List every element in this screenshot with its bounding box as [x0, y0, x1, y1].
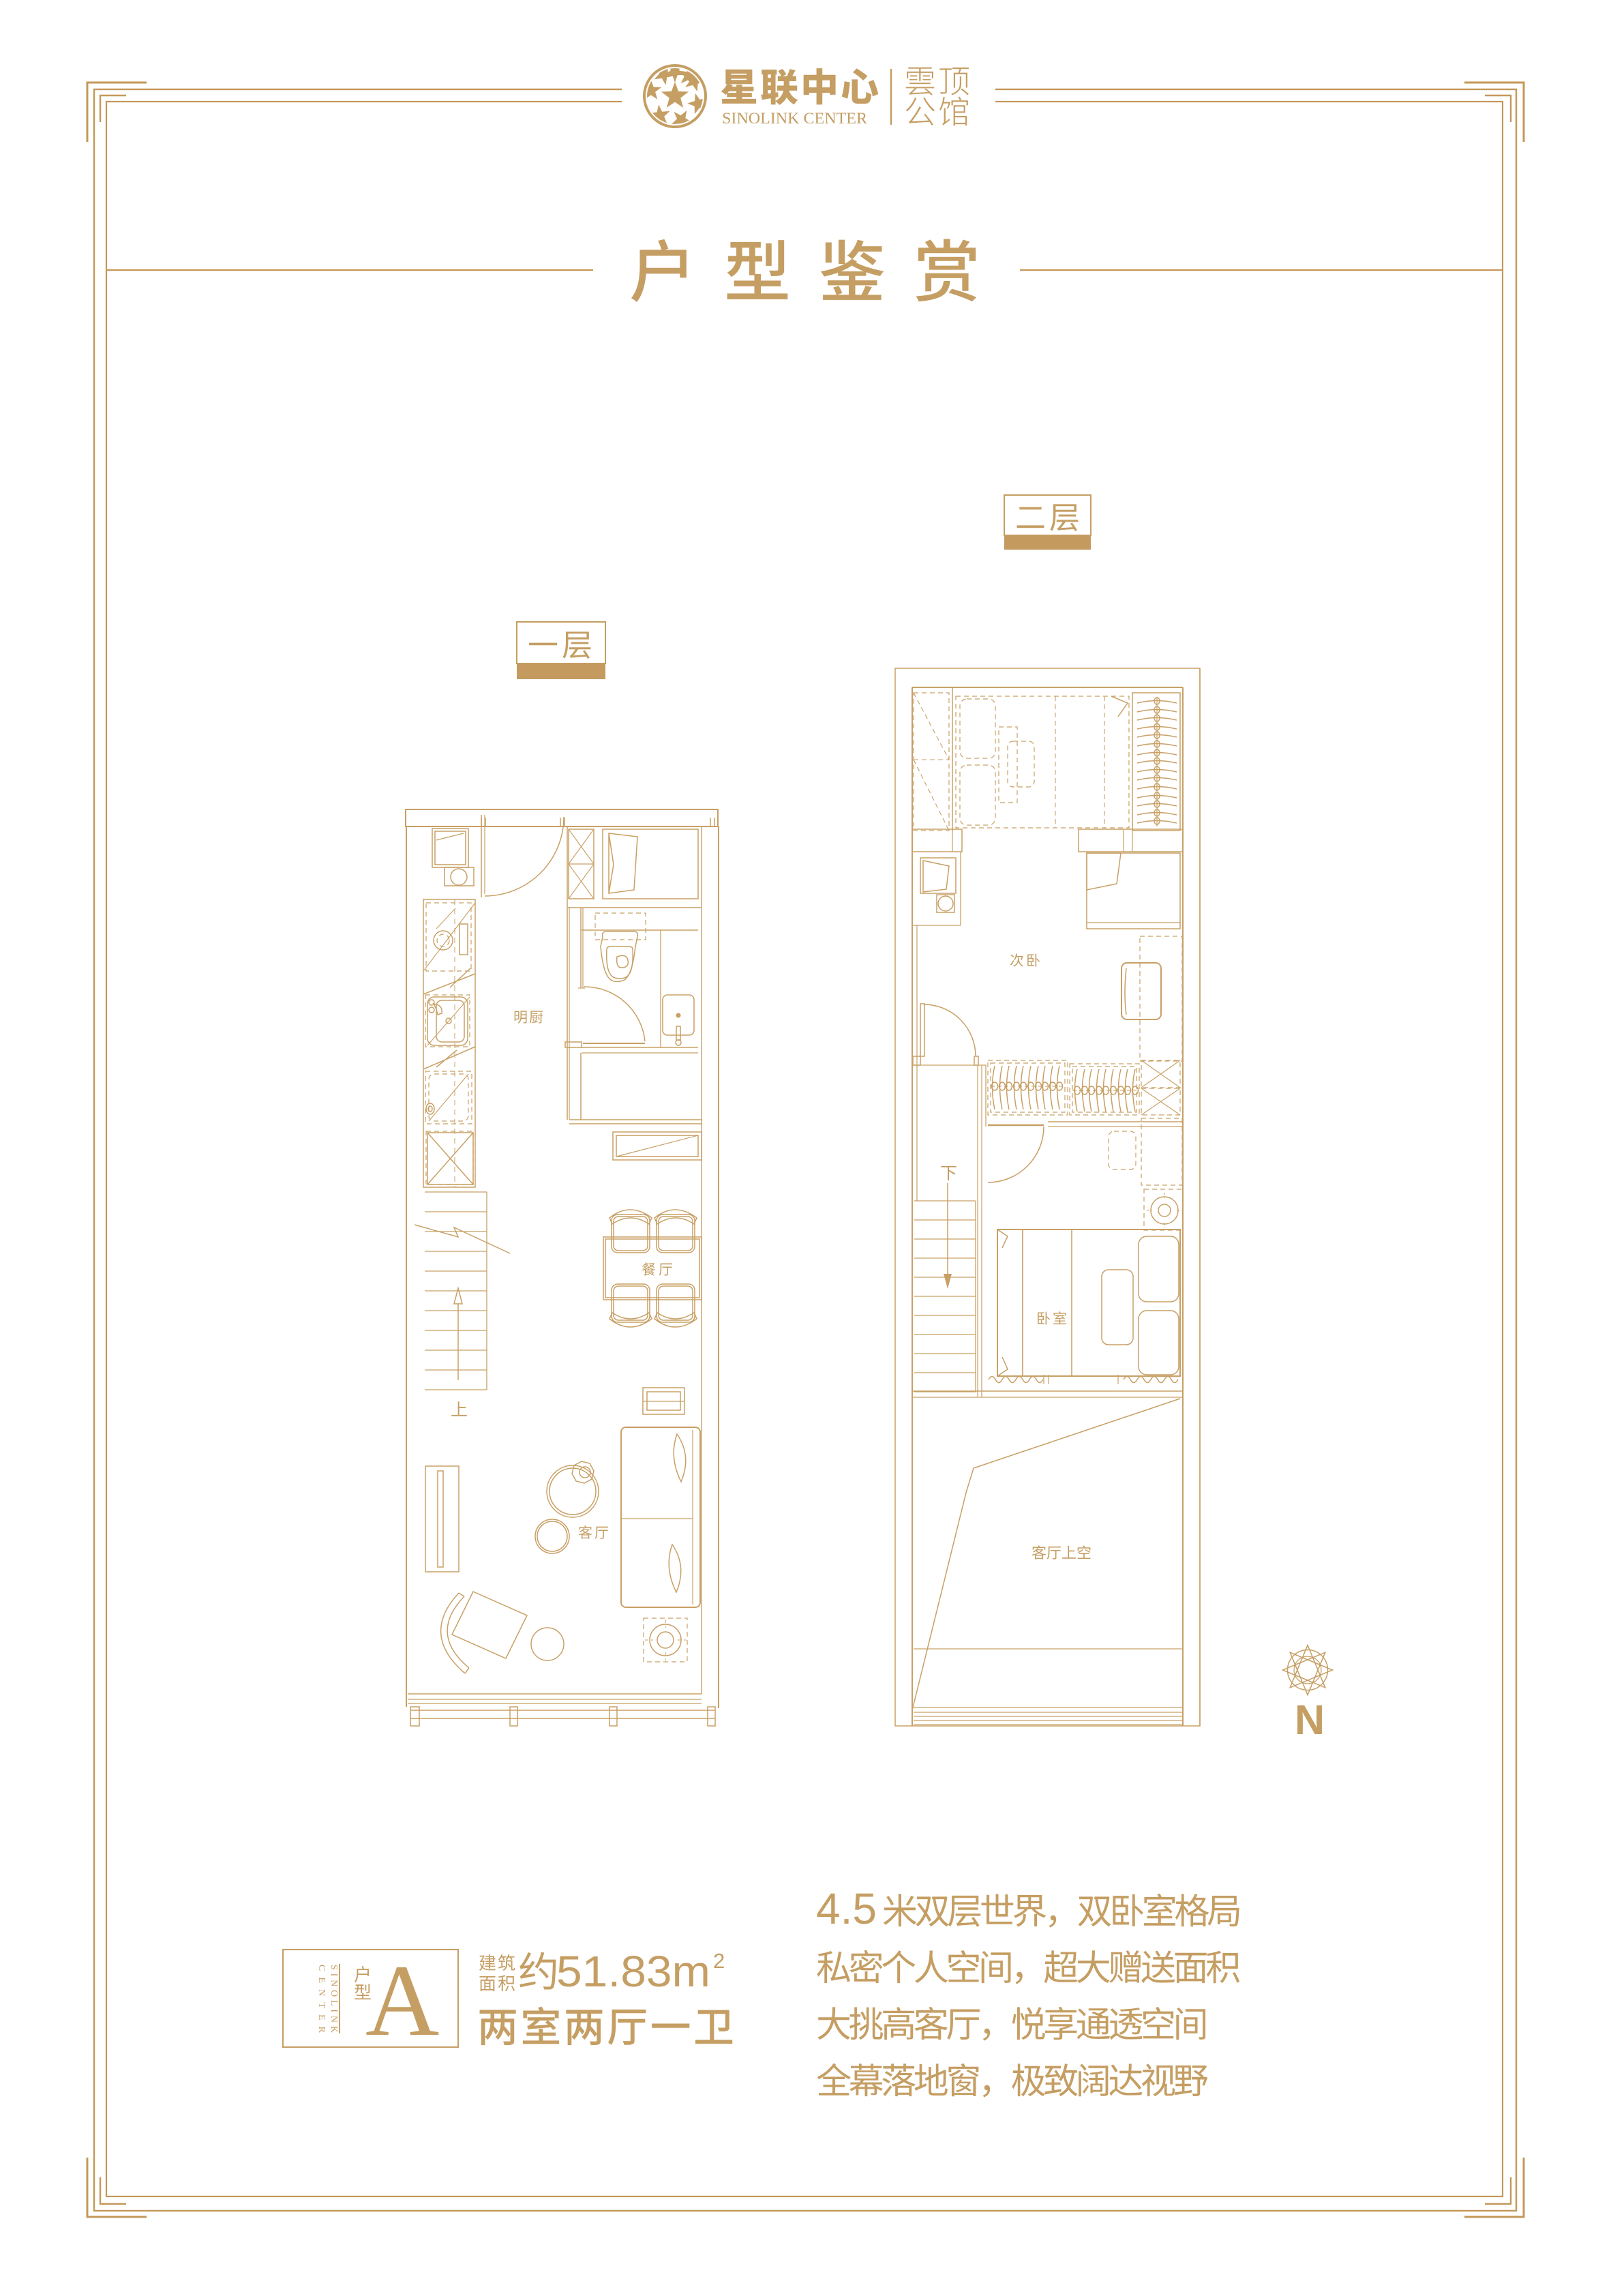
svg-text:A: A — [365, 1944, 439, 2057]
svg-text:N: N — [1295, 1697, 1325, 1743]
svg-text:51.83m: 51.83m — [556, 1947, 710, 1996]
svg-text:SINOLINK CENTER: SINOLINK CENTER — [722, 110, 867, 128]
svg-text:4.5: 4.5 — [816, 1884, 877, 1933]
svg-text:2: 2 — [713, 1949, 725, 1973]
